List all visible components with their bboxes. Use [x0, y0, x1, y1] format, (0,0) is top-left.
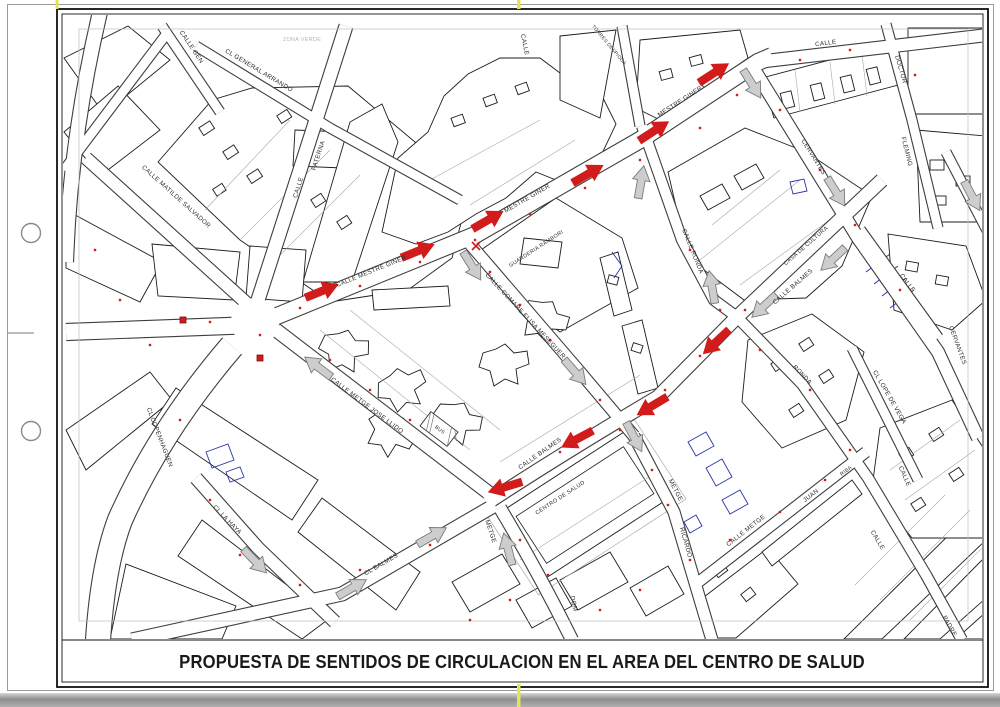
map-dot	[824, 479, 826, 481]
junction-plaza	[231, 298, 279, 346]
map-dot	[519, 479, 521, 481]
map-dot	[179, 419, 181, 421]
map-dot	[854, 224, 856, 226]
map-dot	[584, 187, 586, 189]
map-dot	[519, 539, 521, 541]
map-dot	[744, 309, 746, 311]
map-dot	[699, 127, 701, 129]
title-block-text: PROPUESTA DE SENTIDOS DE CIRCULACION EN …	[179, 651, 865, 672]
scan-mark-yellow-bottom	[517, 684, 521, 707]
map-dot	[259, 334, 261, 336]
map-dot	[849, 49, 851, 51]
map-dot	[559, 451, 561, 453]
punch-hole-top	[22, 224, 41, 243]
map-dot	[209, 499, 211, 501]
map-dot	[779, 511, 781, 513]
map-dot	[209, 321, 211, 323]
map-dot	[239, 554, 241, 556]
map-dot	[359, 569, 361, 571]
map-dot	[759, 349, 761, 351]
map-dot	[94, 249, 96, 251]
map-dot	[914, 74, 916, 76]
map-dot	[664, 389, 666, 391]
map-dot	[667, 504, 669, 506]
map-dot	[529, 213, 531, 215]
scanner-edge	[0, 693, 1000, 707]
map-dot	[369, 389, 371, 391]
map-dot	[149, 344, 151, 346]
scan-mark-yellow-topleft	[56, 0, 59, 9]
map-dot	[474, 239, 476, 241]
scan-mark-yellow-top	[517, 0, 521, 9]
map-dot	[509, 599, 511, 601]
map-dot	[699, 355, 701, 357]
map-dot	[359, 285, 361, 287]
map-dot	[799, 59, 801, 61]
map-dot	[899, 289, 901, 291]
map-dot	[547, 574, 549, 576]
title-block: PROPUESTA DE SENTIDOS DE CIRCULACION EN …	[179, 651, 865, 672]
map-dot	[689, 559, 691, 561]
map-dot	[469, 619, 471, 621]
scanned-plan-page: CALLE GENCL GENERAL ARRANDOZONA VERDECAL…	[0, 0, 1000, 707]
map-dot	[639, 589, 641, 591]
map-dot	[736, 94, 738, 96]
map-marker-square	[180, 317, 186, 323]
punch-hole-bottom	[22, 422, 41, 441]
map-marker-square	[257, 355, 263, 361]
map-dot	[849, 449, 851, 451]
map-dot	[299, 584, 301, 586]
map-dot	[419, 261, 421, 263]
map-dot	[809, 389, 811, 391]
map-dot	[119, 299, 121, 301]
map-svg: CALLE GENCL GENERAL ARRANDOZONA VERDECAL…	[0, 0, 1000, 707]
street-label: ZONA VERDE	[283, 37, 321, 43]
map-dot	[429, 544, 431, 546]
map-dot	[619, 429, 621, 431]
map-dot	[409, 419, 411, 421]
map-dot	[599, 609, 601, 611]
map-dot	[639, 159, 641, 161]
map-dot	[299, 307, 301, 309]
map-dot	[779, 109, 781, 111]
map-dot	[651, 469, 653, 471]
map-dot	[719, 309, 721, 311]
map-dot	[329, 359, 331, 361]
map-dot	[599, 399, 601, 401]
